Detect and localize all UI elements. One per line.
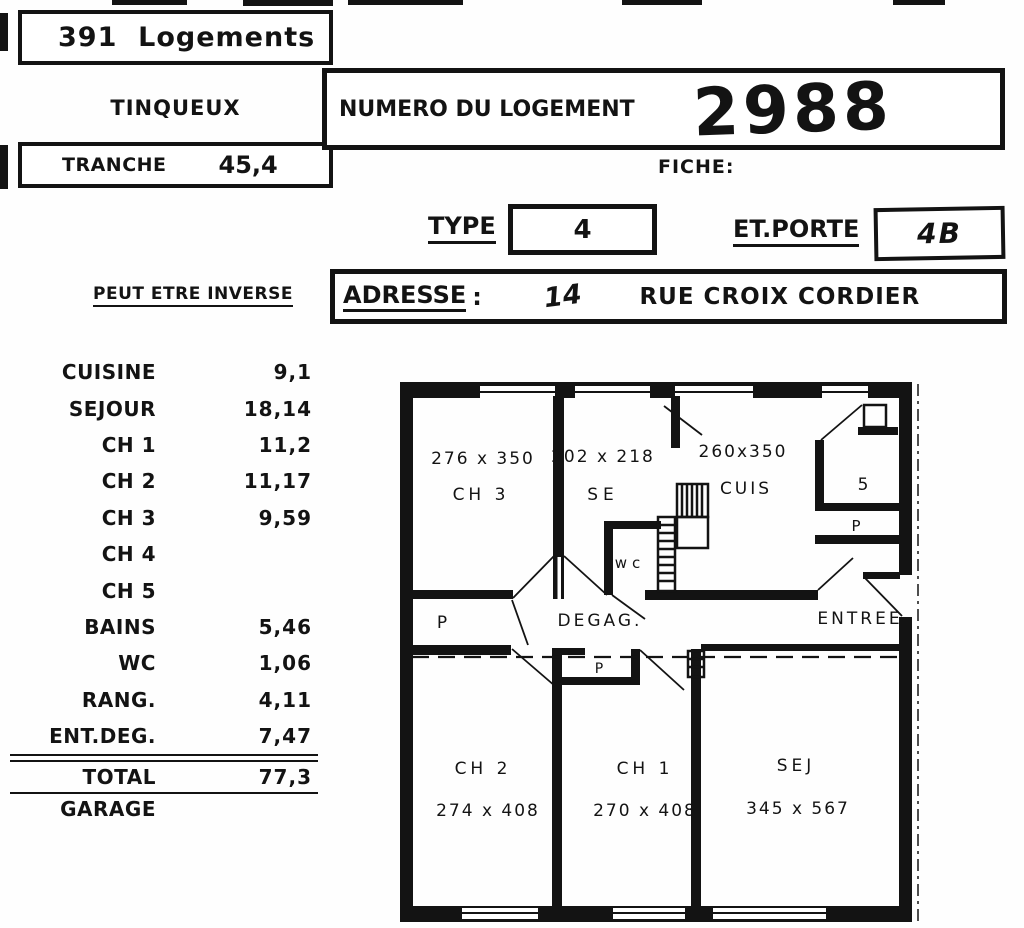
etage-porte-value-box: 4B bbox=[874, 206, 1006, 261]
room-dims: 274 x 408 bbox=[436, 801, 540, 821]
room-area: 9,1 bbox=[156, 360, 312, 384]
room-name: CUIS bbox=[720, 479, 772, 499]
total-separator-double-line bbox=[10, 754, 318, 762]
room-name: ENTREE bbox=[817, 609, 902, 629]
room-name: P bbox=[851, 517, 862, 535]
table-row: CUISINE9,1 bbox=[20, 354, 312, 390]
room-name: P bbox=[595, 661, 605, 677]
table-row: WC1,06 bbox=[20, 645, 312, 681]
table-row: ENT.DEG.7,47 bbox=[20, 718, 312, 754]
room-label: CH 4 bbox=[20, 542, 156, 566]
room-name: CH 2 bbox=[455, 759, 512, 779]
adresse-street: RUE CROIX CORDIER bbox=[639, 284, 920, 310]
room-label: RANG. bbox=[20, 688, 156, 712]
room-area: 7,47 bbox=[156, 724, 312, 748]
adresse-label: ADRESSE bbox=[343, 281, 466, 312]
room-dims: 345 x 567 bbox=[746, 799, 850, 819]
tranche-value: 45,4 bbox=[219, 151, 278, 179]
room-name: CH 3 bbox=[453, 485, 510, 505]
room-dims: 276 x 350 bbox=[431, 449, 535, 469]
type-label: TYPE bbox=[428, 212, 496, 244]
room-area: 1,06 bbox=[156, 651, 312, 675]
wall bbox=[899, 382, 912, 922]
numero-logement-box: NUMERO DU LOGEMENT 2988 bbox=[322, 68, 1005, 150]
room-area: 9,59 bbox=[156, 506, 312, 530]
room-label: CH 2 bbox=[20, 469, 156, 493]
adresse-box: ADRESSE : 14 RUE CROIX CORDIER bbox=[330, 269, 1007, 324]
window bbox=[462, 908, 826, 919]
scan-artifact bbox=[348, 0, 463, 5]
room-label: WC bbox=[20, 651, 156, 675]
tranche-label: TRANCHE bbox=[62, 154, 167, 176]
room-label: CUISINE bbox=[20, 360, 156, 384]
table-row: CH 211,17 bbox=[20, 463, 312, 499]
room-name: DEGAG. bbox=[558, 611, 643, 631]
room-label: BAINS bbox=[20, 615, 156, 639]
room-label: SEJOUR bbox=[20, 397, 156, 421]
total-label: TOTAL bbox=[20, 765, 156, 789]
table-row: CH 4 bbox=[20, 536, 312, 572]
room-name: CH 1 bbox=[617, 759, 674, 779]
room-name: SE bbox=[587, 485, 619, 505]
scan-artifact bbox=[0, 145, 8, 189]
room-areas-table: CUISINE9,1 SEJOUR18,14 CH 111,2 CH 211,1… bbox=[20, 354, 312, 824]
scan-artifact bbox=[622, 0, 702, 5]
scan-artifact bbox=[893, 0, 945, 5]
room-dims: 270 x 408 bbox=[593, 801, 697, 821]
room-label: ENT.DEG. bbox=[20, 724, 156, 748]
tranche-box: TRANCHE 45,4 bbox=[18, 142, 333, 188]
table-row: CH 39,59 bbox=[20, 500, 312, 536]
table-row: CH 5 bbox=[20, 572, 312, 608]
door-jamb-slit bbox=[558, 557, 562, 599]
room-area: 4,11 bbox=[156, 688, 312, 712]
garage-label: GARAGE bbox=[20, 797, 156, 821]
floor-plan-drawing: 276 x 350 CH 3 202 x 218 SE 260x350 CUIS… bbox=[398, 378, 922, 926]
type-value-box: 4 bbox=[508, 204, 657, 255]
room-area: 18,14 bbox=[156, 397, 312, 421]
room-dims: 260x350 bbox=[699, 442, 788, 462]
logements-box: 391 Logements bbox=[18, 10, 333, 65]
scan-artifact bbox=[0, 13, 8, 51]
fiche-label: FICHE: bbox=[658, 156, 734, 178]
table-row: BAINS5,46 bbox=[20, 609, 312, 645]
numero-value-handwritten: 2988 bbox=[691, 67, 893, 151]
room-label: CH 3 bbox=[20, 506, 156, 530]
etage-porte-label: ET.PORTE bbox=[733, 215, 859, 247]
adresse-colon: : bbox=[472, 283, 482, 311]
room-name: 5 bbox=[858, 475, 871, 495]
room-name: P bbox=[437, 613, 449, 633]
peut-etre-inverse-note: PEUT ETRE INVERSE bbox=[93, 284, 293, 307]
interior-walls bbox=[410, 396, 900, 906]
room-label: CH 1 bbox=[20, 433, 156, 457]
fiche-logement-page: 391 Logements TINQUEUX TRANCHE 45,4 NUME… bbox=[0, 0, 1024, 928]
room-label: CH 5 bbox=[20, 579, 156, 603]
room-area: 5,46 bbox=[156, 615, 312, 639]
city-name: TINQUEUX bbox=[18, 96, 333, 120]
total-value: 77,3 bbox=[156, 765, 312, 789]
room-dims: 202 x 218 bbox=[551, 447, 655, 467]
room-name: wc bbox=[615, 554, 646, 572]
table-row: RANG.4,11 bbox=[20, 682, 312, 718]
logements-count: 391 Logements bbox=[58, 22, 315, 53]
floor-plan: 276 x 350 CH 3 202 x 218 SE 260x350 CUIS… bbox=[398, 378, 922, 926]
table-row: SEJOUR18,14 bbox=[20, 390, 312, 426]
room-area: 11,17 bbox=[156, 469, 312, 493]
total-row: TOTAL77,3 bbox=[20, 762, 312, 792]
numero-label: NUMERO DU LOGEMENT bbox=[339, 97, 635, 122]
room-name: SEJ bbox=[777, 756, 816, 776]
scan-artifact bbox=[243, 0, 333, 6]
table-row: CH 111,2 bbox=[20, 427, 312, 463]
room-area: 11,2 bbox=[156, 433, 312, 457]
adresse-number-handwritten: 14 bbox=[542, 279, 583, 314]
garage-row: GARAGE bbox=[20, 794, 312, 824]
scan-artifact bbox=[112, 0, 187, 5]
